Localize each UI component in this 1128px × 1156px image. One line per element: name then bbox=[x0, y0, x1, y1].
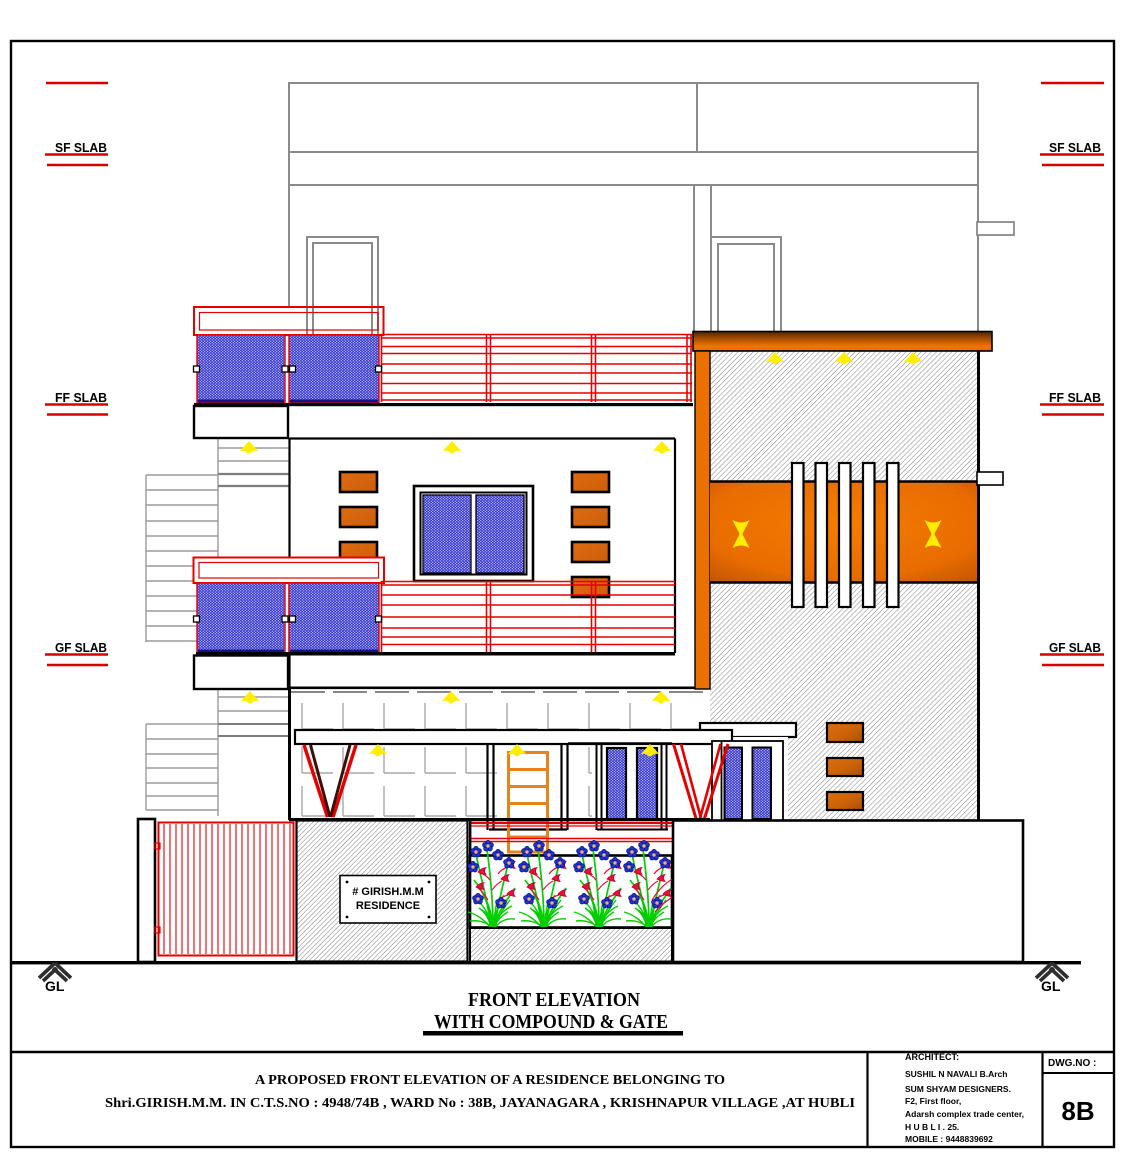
svg-text:RESIDENCE: RESIDENCE bbox=[356, 900, 420, 912]
svg-text:MOBILE : 9448839692: MOBILE : 9448839692 bbox=[905, 1134, 993, 1144]
svg-text:GL: GL bbox=[1041, 978, 1061, 994]
svg-text:GL: GL bbox=[45, 978, 65, 994]
svg-text:GF SLAB: GF SLAB bbox=[55, 640, 107, 655]
svg-text:FF SLAB: FF SLAB bbox=[55, 390, 107, 405]
svg-text:SF SLAB: SF SLAB bbox=[1049, 140, 1101, 155]
svg-text:Adarsh complex trade center,: Adarsh complex trade center, bbox=[905, 1109, 1024, 1119]
svg-text:A PROPOSED FRONT ELEVATION OF: A PROPOSED FRONT ELEVATION OF A RESIDENC… bbox=[255, 1073, 725, 1088]
svg-text:# GIRISH.M.M: # GIRISH.M.M bbox=[352, 886, 424, 898]
svg-text:SUM SHYAM DESIGNERS.: SUM SHYAM DESIGNERS. bbox=[905, 1084, 1011, 1094]
svg-text:H U B L I . 25.: H U B L I . 25. bbox=[905, 1122, 959, 1132]
svg-text:SUSHIL N NAVALI B.Arch: SUSHIL N NAVALI B.Arch bbox=[905, 1069, 1007, 1079]
svg-text:WITH COMPOUND & GATE: WITH COMPOUND & GATE bbox=[434, 1011, 668, 1033]
svg-text:Shri.GIRISH.M.M. IN C.T.S.NO :: Shri.GIRISH.M.M. IN C.T.S.NO : 4948/74B … bbox=[105, 1096, 855, 1111]
svg-text:ARCHITECT:: ARCHITECT: bbox=[905, 1052, 959, 1062]
svg-text:FRONT ELEVATION: FRONT ELEVATION bbox=[468, 989, 640, 1011]
svg-text:DWG.NO :: DWG.NO : bbox=[1048, 1058, 1096, 1069]
svg-text:F2, First floor,: F2, First floor, bbox=[905, 1096, 961, 1106]
svg-text:8B: 8B bbox=[1061, 1096, 1094, 1126]
svg-text:FF SLAB: FF SLAB bbox=[1049, 390, 1101, 405]
svg-text:GF SLAB: GF SLAB bbox=[1049, 640, 1101, 655]
svg-text:SF SLAB: SF SLAB bbox=[55, 140, 107, 155]
